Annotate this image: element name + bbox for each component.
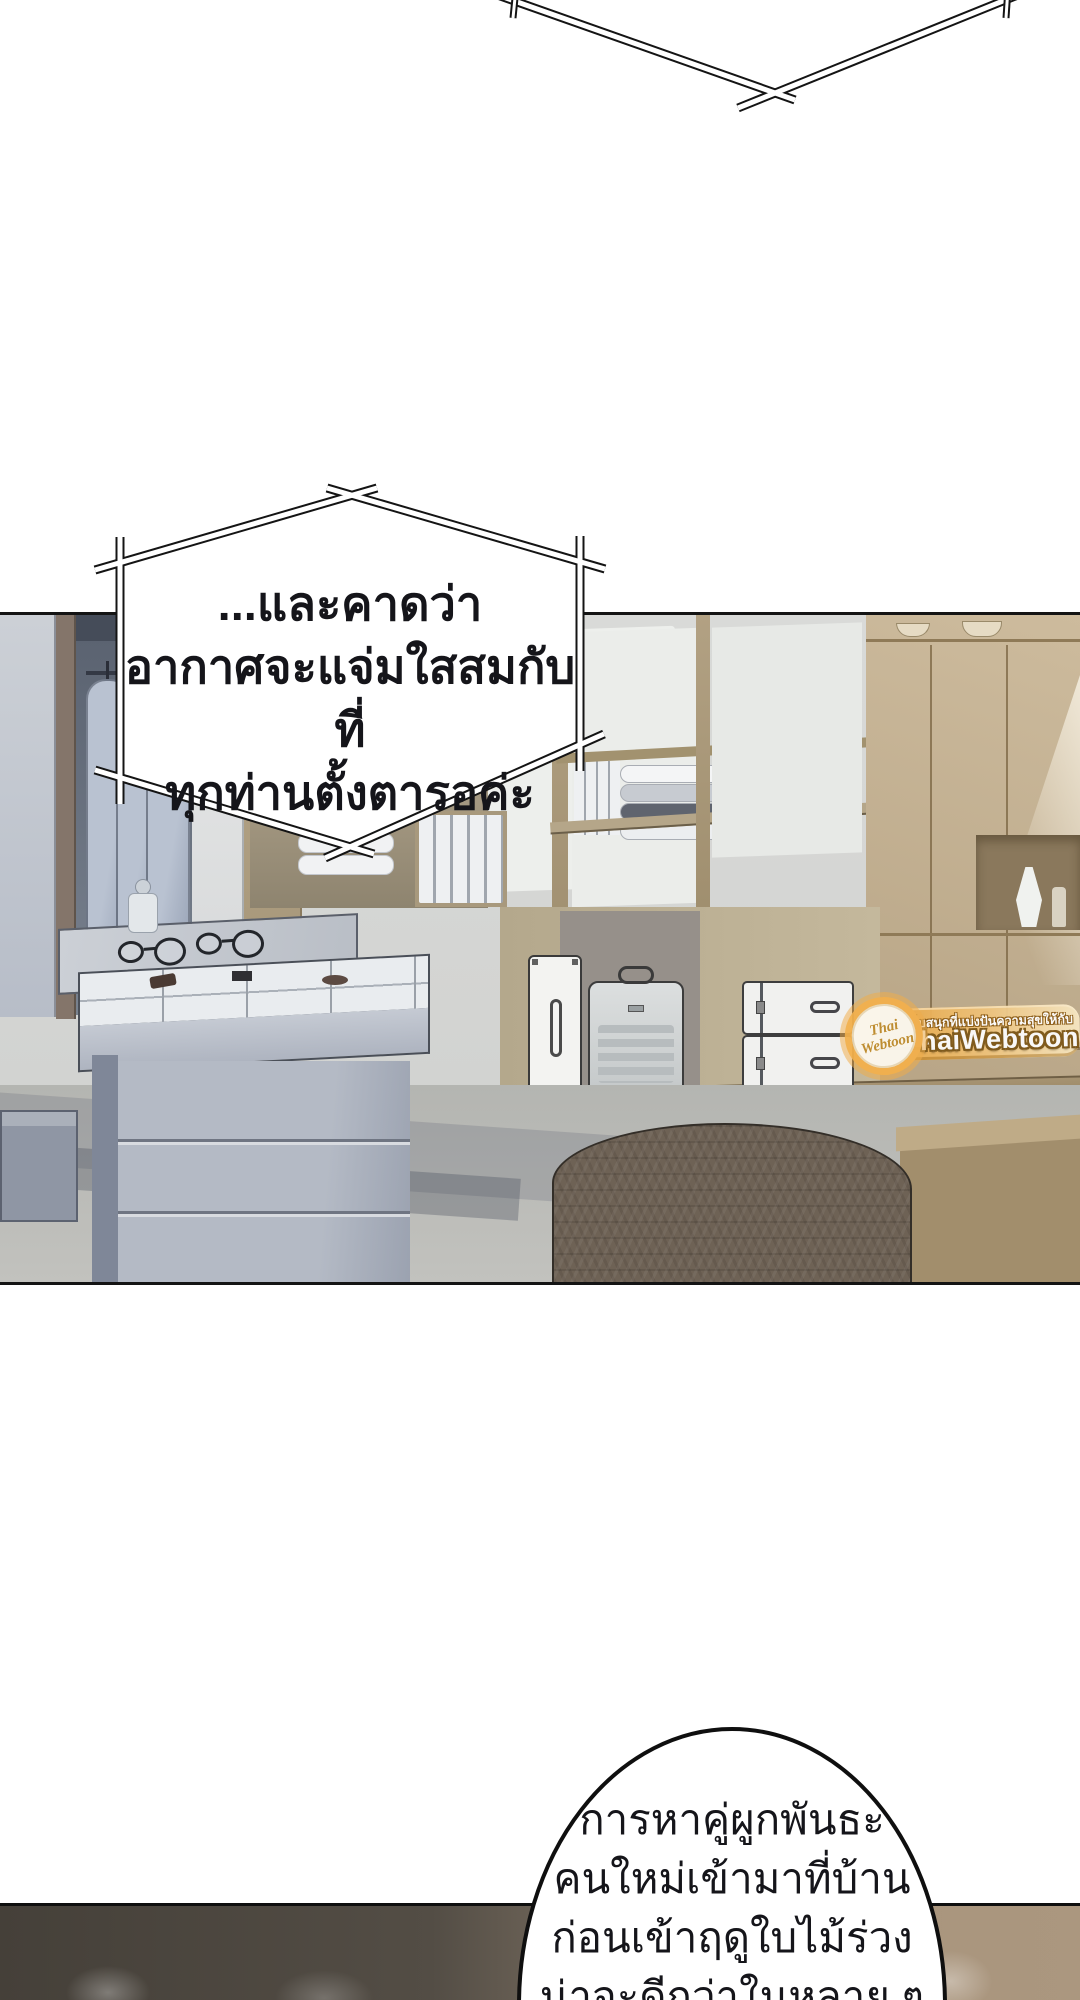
fabric-pouf xyxy=(552,1123,912,1283)
trunk xyxy=(742,981,854,1035)
perfume-bottle xyxy=(128,893,158,933)
eyeglasses xyxy=(195,929,269,960)
trunk-latch xyxy=(756,1001,765,1014)
drawer-seam xyxy=(118,1139,410,1142)
trunk-handle xyxy=(810,1001,840,1013)
webtoon-page: เว็บสนุกที่แบ่งปันความสุขให้กับทุกคน Tha… xyxy=(0,0,1080,2000)
forecast-line-2: อากาศจะแจ่มใสสมกับที่ xyxy=(110,635,590,761)
bowl xyxy=(962,621,1002,637)
drawer-seam xyxy=(118,1211,410,1214)
watermark-brand: ThaiWebtoon xyxy=(903,1022,1076,1057)
trunk-handle xyxy=(550,999,562,1057)
hanger-hook xyxy=(106,661,109,679)
forecast-line-3: ทุกท่านตั้งตารอค่ะ xyxy=(110,761,590,824)
lens xyxy=(117,940,145,964)
stacked-trunks xyxy=(742,981,854,1095)
left-wall xyxy=(0,615,56,1017)
lens xyxy=(195,932,222,956)
corner-bracket xyxy=(532,959,538,965)
narration-line-1: การหาคู่ผูกพันธะ xyxy=(520,1790,944,1849)
cabinet-door-seam xyxy=(930,645,932,1020)
dresser-side-panel xyxy=(92,1055,118,1285)
binder-shelf xyxy=(415,811,507,907)
folded-shirt xyxy=(298,855,394,875)
ribbed-briefcase xyxy=(588,981,684,1097)
briefcase-latch xyxy=(628,1005,644,1012)
trunk-latch xyxy=(756,1057,765,1070)
briefcase-handle xyxy=(618,966,654,984)
trunk-handle xyxy=(810,1057,840,1069)
tray-item xyxy=(322,975,348,985)
file-binders xyxy=(419,815,503,903)
narration-bubble-text: การหาคู่ผูกพันธะ คนใหม่เข้ามาที่บ้าน ก่อ… xyxy=(520,1790,944,2000)
wooden-platform xyxy=(900,1135,1080,1285)
cabinet-ledge xyxy=(866,639,1080,642)
watermark: เว็บสนุกที่แบ่งปันความสุขให้กับทุกคน Tha… xyxy=(844,992,1080,1090)
open-shelf xyxy=(976,835,1080,930)
folded-shirt xyxy=(298,833,394,853)
lens xyxy=(231,929,265,959)
lens xyxy=(153,936,187,967)
forecast-line-1: ...และคาดว่า xyxy=(110,572,590,635)
watermark-badge: Thai Webtoon xyxy=(844,996,924,1076)
light-wedge xyxy=(960,675,1080,985)
briefcase-ribs xyxy=(598,1025,674,1083)
storage-box xyxy=(0,1110,78,1222)
cabinet-shelf-line xyxy=(866,933,1080,936)
narration-line-4: น่าจะดีกว่าในหลาย ๆ xyxy=(520,1967,944,2000)
tray-item xyxy=(232,971,252,981)
narration-line-3: ก่อนเข้าฤดูใบไม้ร่วง xyxy=(520,1908,944,1967)
watermark-badge-text: Thai Webtoon xyxy=(851,1013,921,1059)
bottle xyxy=(1052,887,1066,927)
narration-line-2: คนใหม่เข้ามาที่บ้าน xyxy=(520,1849,944,1908)
forecast-bubble-text: ...และคาดว่า อากาศจะแจ่มใสสมกับที่ ทุกท่… xyxy=(110,572,590,824)
corner-bracket xyxy=(572,959,578,965)
vase xyxy=(1016,867,1042,927)
bowl xyxy=(896,623,930,637)
top-bubble-tail xyxy=(455,0,1045,108)
dresser-body xyxy=(118,1061,410,1285)
window-light-patch xyxy=(712,622,862,857)
